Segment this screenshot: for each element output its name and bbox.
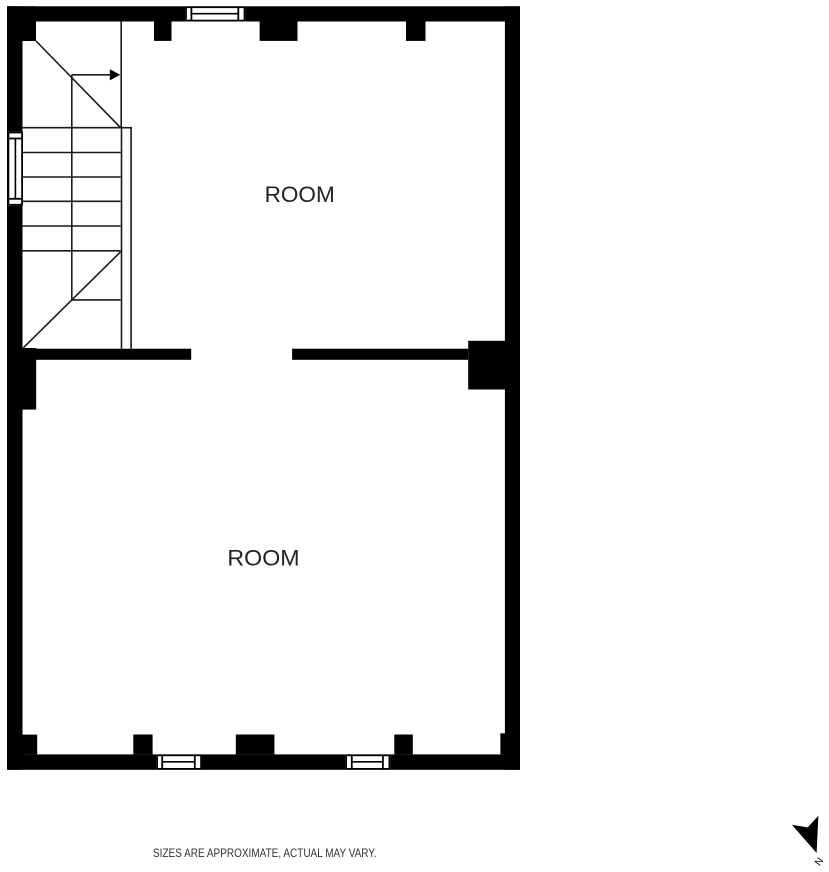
- svg-text:ROOM: ROOM: [227, 545, 299, 570]
- svg-text:SIZES ARE APPROXIMATE, ACTUAL: SIZES ARE APPROXIMATE, ACTUAL MAY VARY.: [153, 848, 377, 860]
- svg-text:ROOM: ROOM: [265, 182, 335, 207]
